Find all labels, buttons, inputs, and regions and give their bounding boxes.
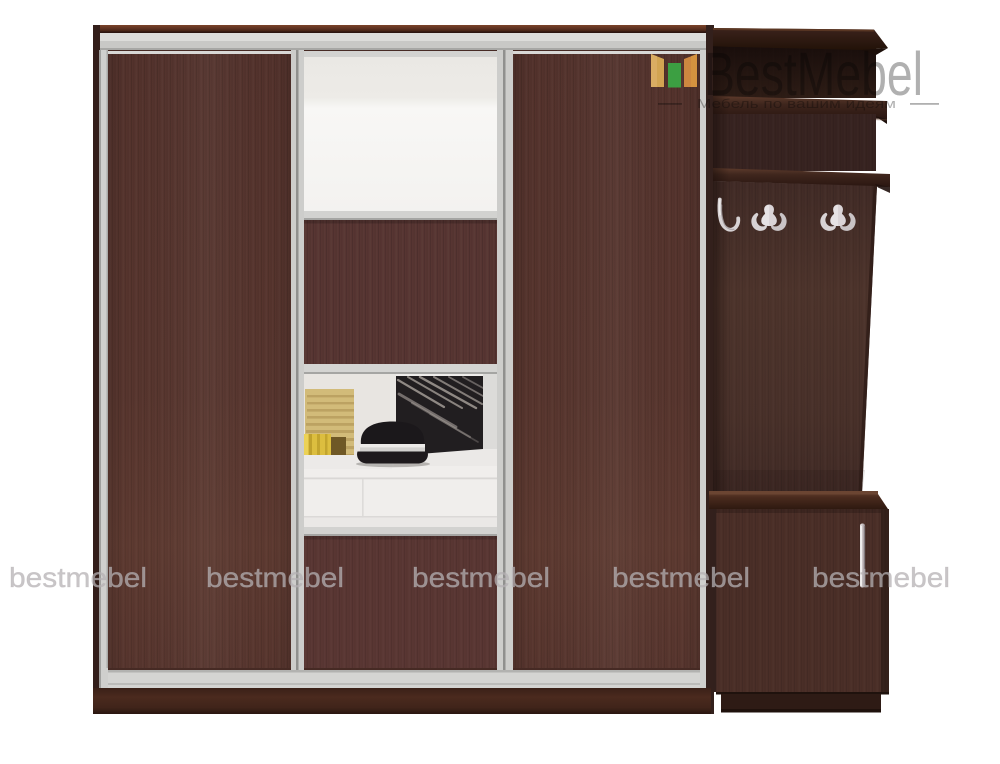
svg-text:Мебель по вашим идеям: Мебель по вашим идеям [697,97,896,111]
svg-text:bestmebel: bestmebel [206,562,344,593]
svg-text:bestmebel: bestmebel [412,562,550,593]
svg-text:bestmebel: bestmebel [9,562,147,593]
svg-text:bestmebel: bestmebel [612,562,750,593]
svg-text:bestmebel: bestmebel [812,562,950,593]
